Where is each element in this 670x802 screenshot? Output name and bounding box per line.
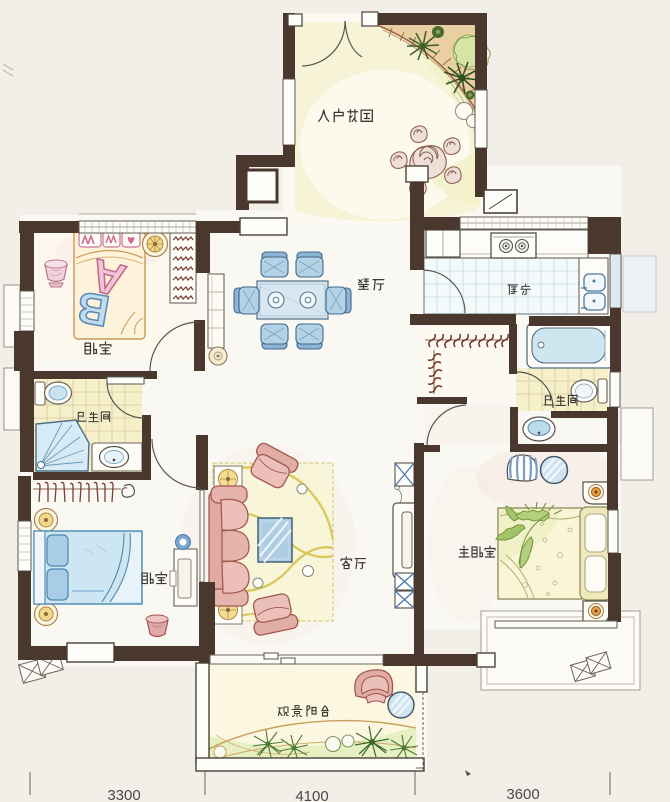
svg-text:3300: 3300	[107, 787, 140, 802]
svg-text:4100: 4100	[295, 788, 328, 802]
svg-text:3600: 3600	[506, 786, 539, 802]
